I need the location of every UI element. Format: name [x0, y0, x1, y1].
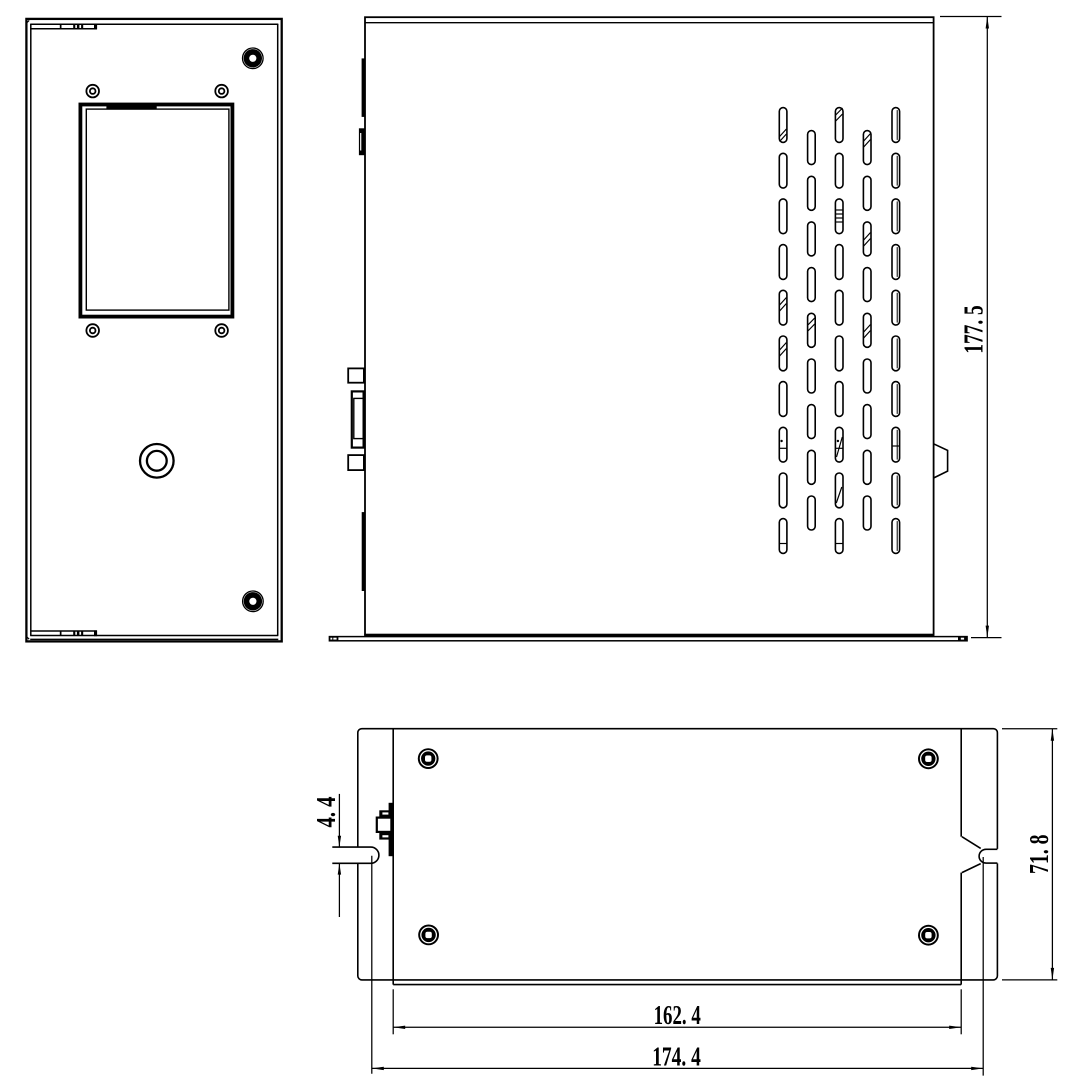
svg-text:71. 8: 71. 8	[1024, 834, 1054, 874]
svg-text:174. 4: 174. 4	[652, 1042, 701, 1072]
svg-text:4. 4: 4. 4	[311, 797, 341, 828]
svg-text:177. 5: 177. 5	[959, 305, 989, 353]
svg-text:162. 4: 162. 4	[654, 1000, 701, 1030]
